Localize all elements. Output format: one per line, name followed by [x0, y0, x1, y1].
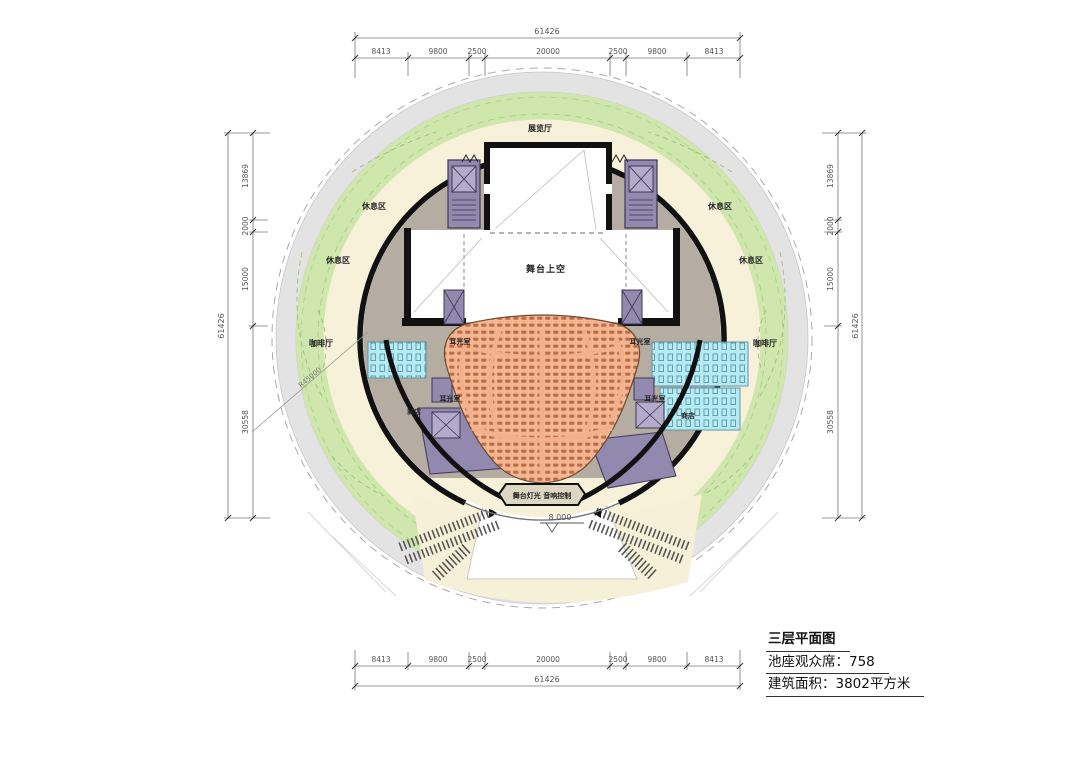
lounge-label-right-1: 休息区 [707, 201, 732, 211]
dim-right-seg2: 15000 [826, 267, 835, 291]
stage-wall-right [673, 228, 680, 324]
dim-bot-seg6: 8413 [704, 655, 723, 664]
dim-top-seg5: 9800 [647, 47, 666, 56]
dim-bot-seg5: 9800 [647, 655, 666, 664]
dimension-right-text: 61426 13869 2000 15000 30558 [826, 164, 860, 434]
dim-left-seg3: 30558 [241, 410, 250, 434]
cafe-label-right: 咖啡厅 [753, 338, 777, 348]
rear-room-wall-top [484, 142, 612, 148]
shop-label-left: 商店 [407, 407, 421, 416]
dim-left-total: 61426 [217, 313, 226, 338]
rear-room-door-right [606, 184, 612, 194]
dim-bot-seg4: 2500 [608, 655, 627, 664]
dim-left-seg0: 13869 [241, 164, 250, 188]
washroom-left [368, 342, 426, 378]
floor-plan-page: 展览厅 舞台上空 休息区 休息区 休息区 休息区 咖啡厅 咖啡厅 耳光室 耳光室… [0, 0, 1080, 763]
shop-label-right: 商店 [681, 411, 695, 420]
washroom-right-lower [660, 388, 740, 430]
dimension-left-text: 61426 13869 2000 15000 30558 [217, 164, 250, 434]
dim-bot-seg3: 20000 [536, 655, 560, 664]
dim-bot-seg1: 9800 [428, 655, 447, 664]
ear-light-label-ur: 耳光室 [630, 337, 651, 346]
lounge-label-left-2: 休息区 [325, 255, 350, 265]
dim-bottom-total: 61426 [534, 675, 559, 684]
dim-right-seg0: 13869 [826, 164, 835, 188]
dim-bot-seg0: 8413 [371, 655, 390, 664]
dim-top-seg2: 2500 [467, 47, 486, 56]
dim-right-seg3: 30558 [826, 410, 835, 434]
dimension-bottom-text: 8413 9800 2500 20000 2500 9800 8413 6142… [371, 655, 723, 684]
seats-count-line: 池座观众席：758 [766, 653, 889, 675]
dim-left-seg2: 15000 [241, 267, 250, 291]
dim-right-seg1: 2000 [826, 216, 835, 235]
stage-wall-left [404, 228, 411, 324]
dim-bot-seg2: 2500 [467, 655, 486, 664]
gallery-label: 展览厅 [527, 123, 552, 133]
dim-top-seg1: 9800 [428, 47, 447, 56]
dimension-top-text: 61426 8413 9800 2500 20000 2500 9800 841… [371, 27, 723, 56]
ear-light-room-upper-right [622, 290, 642, 324]
lounge-label-right-2: 休息区 [738, 255, 763, 265]
elevation-text: 8.000 [549, 513, 572, 522]
dim-right-total: 61426 [851, 313, 860, 338]
control-booth-label: 舞台灯光 音响控制 [513, 491, 571, 500]
ear-light-label-ll: 耳光室 [440, 394, 461, 403]
stage-void-label: 舞台上空 [526, 263, 566, 275]
cafe-label-left: 咖啡厅 [309, 338, 333, 348]
building-area-line: 建筑面积：3802平方米 [766, 675, 924, 697]
dim-top-seg6: 8413 [704, 47, 723, 56]
ear-light-label-lr: 耳光室 [645, 394, 666, 403]
core-right [625, 160, 657, 228]
ear-light-room-upper-left [444, 290, 464, 324]
dim-top-seg0: 8413 [371, 47, 390, 56]
dim-top-seg4: 2500 [608, 47, 627, 56]
rear-room-door-left [484, 184, 490, 194]
dim-top-total: 61426 [534, 27, 559, 36]
ear-light-label-ul: 耳光室 [450, 337, 471, 346]
dim-left-seg1: 2000 [241, 216, 250, 235]
rear-stage-room [487, 144, 609, 230]
core-left [448, 160, 480, 228]
plan-title: 三层平面图 [766, 630, 850, 652]
lounge-label-left-1: 休息区 [361, 201, 386, 211]
dim-top-seg3: 20000 [536, 47, 560, 56]
title-block: 三层平面图 池座观众席：758 建筑面积：3802平方米 [766, 630, 924, 698]
